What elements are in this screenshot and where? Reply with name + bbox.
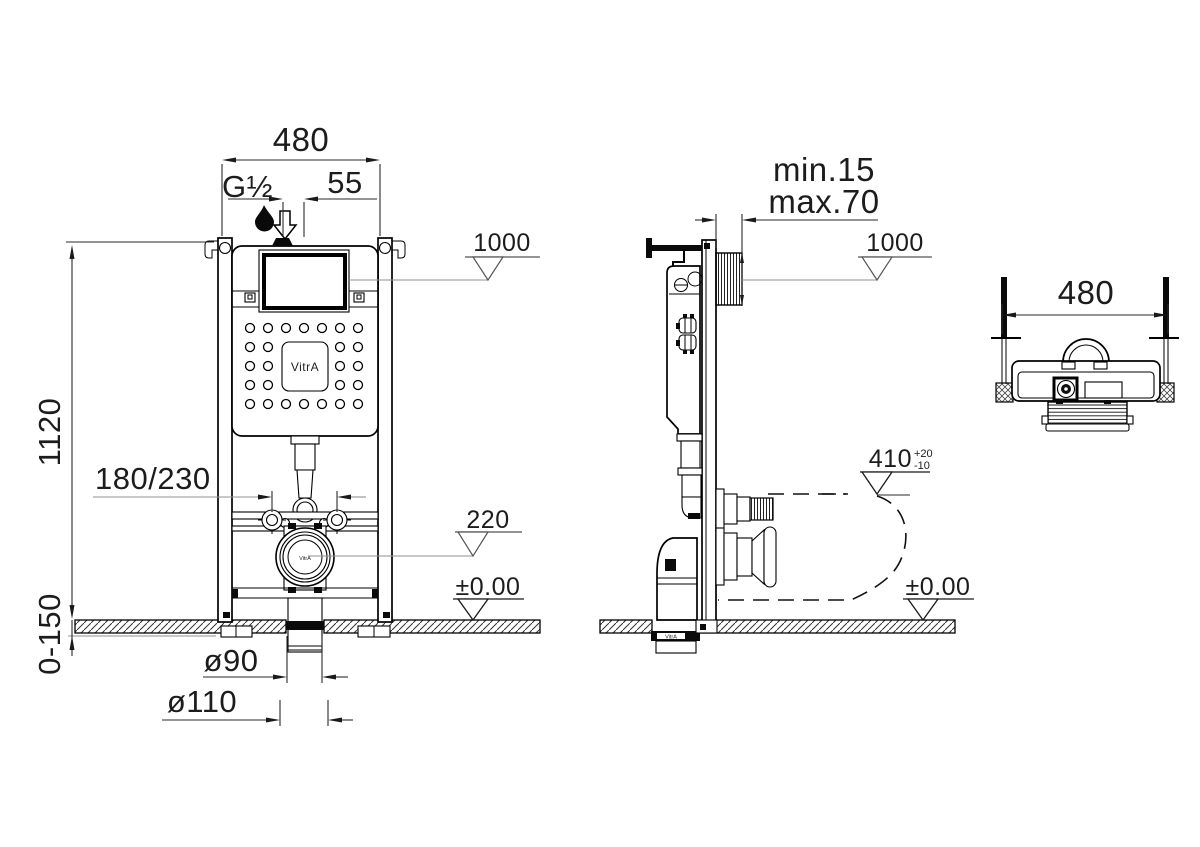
flush-connector-side [716, 489, 773, 529]
svg-text:1120: 1120 [32, 398, 67, 467]
level-triangle-icon [458, 599, 488, 620]
top-view: 480 [991, 274, 1179, 431]
svg-text:220: 220 [466, 506, 509, 534]
level-triangle-icon [908, 599, 938, 620]
brand-logo: VitrA [291, 360, 319, 374]
installation-drawing: VitrA [0, 0, 1200, 847]
side-view: VitrA min.15 max.70 1000 410 +20 [600, 151, 974, 653]
inlet-arrow-icon [274, 211, 296, 239]
svg-text:±0.00: ±0.00 [456, 573, 521, 601]
label-outlet-height: 410 [869, 445, 912, 473]
level-triangle-icon [862, 472, 892, 494]
drain-pipe-front [286, 598, 324, 652]
service-opening-top [1085, 382, 1122, 398]
frame-rail-left [218, 238, 232, 622]
svg-text:480: 480 [1058, 274, 1115, 311]
dim-floor-range: 0-150 [32, 593, 75, 675]
dim-1120: 1120 [32, 242, 214, 619]
flush-plate-sleeve [716, 253, 742, 305]
dim-inlet-thread: G½ [222, 169, 283, 237]
svg-text:0-150: 0-150 [32, 593, 67, 675]
pipe-brand-label: VitrA [665, 635, 677, 641]
frame-rail-right [378, 238, 392, 622]
level-410: 410 +20 -10 [822, 445, 933, 495]
svg-text:55: 55 [327, 165, 362, 200]
front-view: VitrA [32, 121, 540, 726]
wall-bracket-side [646, 238, 710, 266]
technical-drawing-page: VitrA [0, 0, 1200, 847]
dim-55: 55 [304, 165, 377, 237]
level-1000-side: 1000 [742, 229, 932, 280]
flush-bend-arch [1063, 339, 1109, 362]
level-triangle-icon [458, 532, 488, 556]
level-triangle-icon [473, 257, 503, 280]
svg-text:1000: 1000 [866, 229, 924, 257]
svg-text:1000: 1000 [473, 229, 531, 257]
label-wall-max: max.70 [768, 183, 879, 220]
label-tolerance-plus: +20 [914, 448, 933, 460]
svg-text:480: 480 [273, 121, 330, 158]
dim-drain-90: ø90 [203, 636, 348, 683]
svg-text:180/230: 180/230 [95, 461, 211, 496]
sleeve-top [1042, 400, 1133, 431]
frame-rail-side [702, 240, 716, 622]
flush-pipe-front [291, 436, 319, 522]
flush-plate-opening [259, 250, 349, 312]
crossbar-upper [232, 512, 378, 519]
svg-text:ø110: ø110 [167, 684, 237, 719]
dim-drain-110: ø110 [162, 684, 353, 726]
soil-connector-side [716, 527, 776, 587]
drain-brand-label: VitrA [299, 556, 311, 562]
svg-text:ø90: ø90 [204, 643, 259, 678]
dim-480-top: 480 [1002, 274, 1168, 334]
dim-wall-gap: min.15 max.70 [695, 151, 880, 248]
label-tolerance-minus: -10 [914, 460, 930, 472]
water-drop-icon [255, 205, 274, 232]
level-floor-front: ±0.00 [453, 573, 524, 620]
level-triangle-icon [862, 257, 892, 280]
level-floor-side: ±0.00 [903, 573, 974, 620]
valve-connection-top [1054, 378, 1077, 400]
frame-foot-side [696, 620, 717, 633]
drain-elbow-side: VitrA [651, 538, 700, 653]
inlet-stub [272, 238, 293, 246]
flush-pipe-side [677, 434, 702, 519]
drain-outlet-front: VitrA [276, 523, 334, 593]
svg-text:±0.00: ±0.00 [906, 573, 971, 601]
